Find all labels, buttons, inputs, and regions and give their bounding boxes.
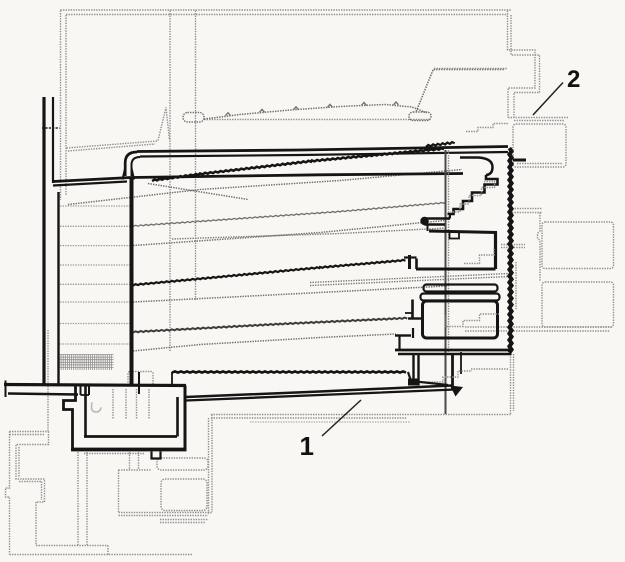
svg-text:2: 2 — [567, 66, 580, 93]
svg-text:1: 1 — [300, 431, 314, 461]
